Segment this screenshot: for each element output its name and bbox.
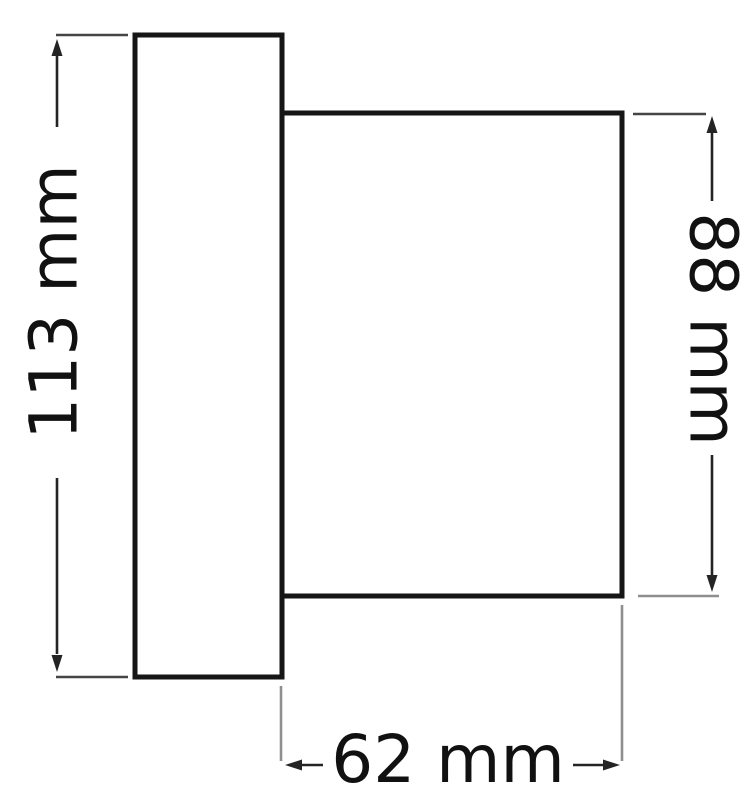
dim-arrow-left-icon (285, 760, 302, 771)
dim-arrow-up-icon (707, 116, 718, 133)
dimension-body-height: 88 mm (633, 114, 752, 596)
dimension-body-depth: 62 mm (281, 605, 622, 798)
dim-arrow-down-icon (52, 655, 63, 672)
dimension-overall-height: 113 mm (15, 35, 128, 677)
flange-outline (135, 35, 282, 677)
dim-arrow-right-icon (603, 760, 620, 771)
dim-arrow-down-icon (707, 575, 718, 592)
overall-height-label: 113 mm (15, 164, 92, 440)
body-depth-label: 62 mm (331, 721, 565, 798)
body-height-label: 88 mm (675, 212, 752, 446)
dim-arrow-up-icon (52, 39, 63, 56)
drawing-svg: 113 mm 88 mm 62 mm (0, 0, 752, 800)
part-outline (135, 35, 622, 677)
technical-drawing: 113 mm 88 mm 62 mm (0, 0, 752, 800)
body-outline (282, 113, 622, 596)
